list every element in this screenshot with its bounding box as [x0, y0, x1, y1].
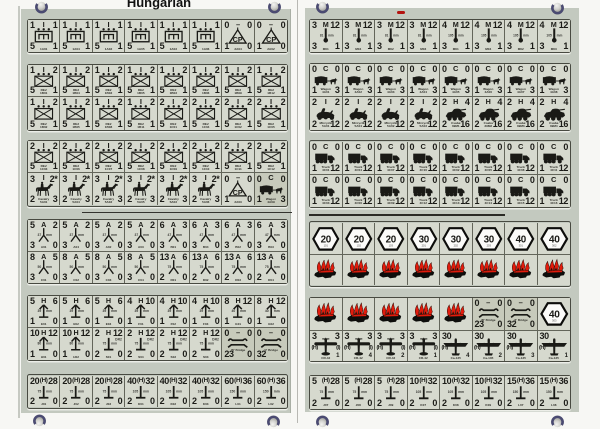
svg-text:81: 81: [385, 33, 389, 37]
svg-text:75: 75: [102, 389, 106, 393]
svg-text:202: 202: [454, 243, 459, 247]
svg-text:102: 102: [356, 243, 361, 247]
svg-text:80: 80: [38, 342, 42, 346]
svg-text:81: 81: [417, 33, 421, 37]
svg-text:81: 81: [352, 33, 356, 37]
svg-text:mm: mm: [274, 233, 280, 237]
svg-text:75: 75: [320, 390, 324, 394]
svg-text:CP: CP: [233, 36, 243, 44]
svg-text:mm: mm: [274, 265, 280, 269]
svg-text:201: 201: [421, 243, 426, 247]
svg-text:40: 40: [265, 309, 269, 313]
svg-text:75: 75: [38, 389, 42, 393]
svg-text:101: 101: [324, 243, 329, 247]
svg-text:39: 39: [200, 309, 204, 313]
svg-text:301: 301: [519, 243, 524, 247]
svg-text:mm: mm: [176, 342, 182, 346]
svg-text:20: 20: [321, 234, 332, 245]
svg-text:mm: mm: [46, 342, 52, 346]
svg-text:75: 75: [167, 342, 171, 346]
svg-text:20: 20: [353, 234, 364, 245]
svg-text:303: 303: [552, 319, 557, 323]
svg-text:mm: mm: [143, 389, 149, 393]
svg-text:mm: mm: [426, 390, 432, 394]
svg-text:mm: mm: [46, 389, 52, 393]
svg-text:302: 302: [552, 243, 557, 247]
svg-text:mm: mm: [208, 309, 214, 313]
svg-text:105: 105: [198, 389, 204, 393]
svg-text:105: 105: [480, 390, 486, 394]
svg-text:50: 50: [135, 265, 139, 269]
svg-text:75: 75: [70, 389, 74, 393]
svg-text:mm: mm: [274, 309, 280, 313]
svg-text:75: 75: [200, 342, 204, 346]
svg-text:mm: mm: [111, 309, 117, 313]
svg-text:mm: mm: [79, 309, 85, 313]
svg-text:mm: mm: [426, 33, 432, 37]
svg-text:105: 105: [513, 33, 518, 37]
svg-text:75: 75: [385, 390, 389, 394]
svg-text:CP: CP: [233, 189, 243, 197]
svg-text:mm: mm: [111, 342, 117, 346]
svg-text:75: 75: [102, 342, 106, 346]
svg-text:mm: mm: [458, 390, 464, 394]
svg-text:47: 47: [167, 233, 171, 237]
svg-text:mm: mm: [111, 265, 117, 269]
svg-text:mm: mm: [176, 309, 182, 313]
svg-text:105: 105: [546, 33, 552, 37]
svg-text:mm: mm: [556, 390, 562, 394]
svg-text:37: 37: [70, 233, 74, 237]
svg-text:150: 150: [545, 390, 551, 394]
svg-text:mm: mm: [46, 265, 52, 269]
svg-text:105: 105: [165, 389, 171, 393]
svg-text:81: 81: [320, 33, 324, 37]
svg-text:39: 39: [135, 309, 139, 313]
svg-text:mm: mm: [79, 265, 85, 269]
svg-text:mm: mm: [208, 389, 214, 393]
svg-text:80: 80: [70, 342, 74, 346]
svg-text:30: 30: [451, 234, 462, 245]
svg-text:40: 40: [516, 234, 527, 245]
svg-text:mm: mm: [208, 265, 214, 269]
svg-text:47: 47: [265, 233, 269, 237]
svg-text:50: 50: [102, 265, 106, 269]
svg-text:47: 47: [200, 233, 204, 237]
svg-text:mm: mm: [79, 389, 85, 393]
svg-text:37: 37: [135, 233, 139, 237]
svg-text:mm: mm: [143, 309, 149, 313]
svg-text:mm: mm: [361, 33, 367, 37]
svg-text:mm: mm: [523, 33, 529, 37]
svg-text:150: 150: [263, 389, 269, 393]
svg-text:50: 50: [70, 265, 74, 269]
svg-text:mm: mm: [361, 390, 367, 394]
svg-text:150: 150: [513, 390, 519, 394]
svg-text:mm: mm: [176, 233, 182, 237]
svg-text:50: 50: [38, 265, 42, 269]
svg-text:103: 103: [389, 243, 394, 247]
svg-text:40: 40: [548, 309, 559, 320]
svg-text:mm: mm: [143, 342, 149, 346]
svg-text:mm: mm: [523, 390, 529, 394]
svg-text:mm: mm: [79, 233, 85, 237]
svg-text:105: 105: [448, 390, 454, 394]
svg-text:75: 75: [352, 390, 356, 394]
svg-text:mm: mm: [46, 309, 52, 313]
svg-text:mm: mm: [143, 265, 149, 269]
svg-text:mm: mm: [458, 33, 464, 37]
svg-text:mm: mm: [46, 233, 52, 237]
svg-text:mm: mm: [274, 389, 280, 393]
svg-text:75: 75: [265, 265, 269, 269]
svg-text:mm: mm: [176, 265, 182, 269]
svg-text:mm: mm: [208, 233, 214, 237]
svg-text:75: 75: [135, 342, 139, 346]
svg-text:mm: mm: [556, 33, 562, 37]
svg-text:mm: mm: [241, 265, 247, 269]
svg-text:39: 39: [38, 309, 42, 313]
svg-text:mm: mm: [241, 389, 247, 393]
svg-text:39: 39: [70, 309, 74, 313]
svg-text:40: 40: [232, 309, 236, 313]
svg-text:203: 203: [486, 243, 491, 247]
svg-text:30: 30: [418, 234, 429, 245]
svg-text:105: 105: [415, 390, 421, 394]
svg-text:mm: mm: [79, 342, 85, 346]
svg-text:mm: mm: [208, 342, 214, 346]
svg-text:mm: mm: [393, 390, 399, 394]
svg-text:mm: mm: [393, 33, 399, 37]
svg-text:mm: mm: [143, 233, 149, 237]
svg-text:105: 105: [448, 33, 453, 37]
svg-text:105: 105: [133, 389, 139, 393]
svg-text:37: 37: [38, 233, 42, 237]
svg-text:mm: mm: [491, 33, 497, 37]
svg-text:20: 20: [386, 234, 397, 245]
svg-text:mm: mm: [328, 33, 334, 37]
svg-text:150: 150: [230, 389, 236, 393]
svg-text:105: 105: [481, 33, 486, 37]
svg-text:mm: mm: [241, 233, 247, 237]
svg-text:75: 75: [200, 265, 204, 269]
svg-text:mm: mm: [176, 389, 182, 393]
svg-text:40: 40: [548, 234, 559, 245]
svg-text:75: 75: [232, 265, 236, 269]
svg-text:30: 30: [483, 234, 494, 245]
svg-text:mm: mm: [241, 309, 247, 313]
svg-text:47: 47: [232, 233, 236, 237]
svg-text:CP: CP: [266, 35, 276, 44]
svg-text:mm: mm: [111, 389, 117, 393]
svg-text:75: 75: [167, 265, 171, 269]
svg-text:39: 39: [102, 309, 106, 313]
svg-text:mm: mm: [328, 390, 334, 394]
svg-text:37: 37: [102, 233, 106, 237]
svg-text:mm: mm: [111, 233, 117, 237]
svg-text:39: 39: [167, 309, 171, 313]
svg-text:mm: mm: [491, 390, 497, 394]
